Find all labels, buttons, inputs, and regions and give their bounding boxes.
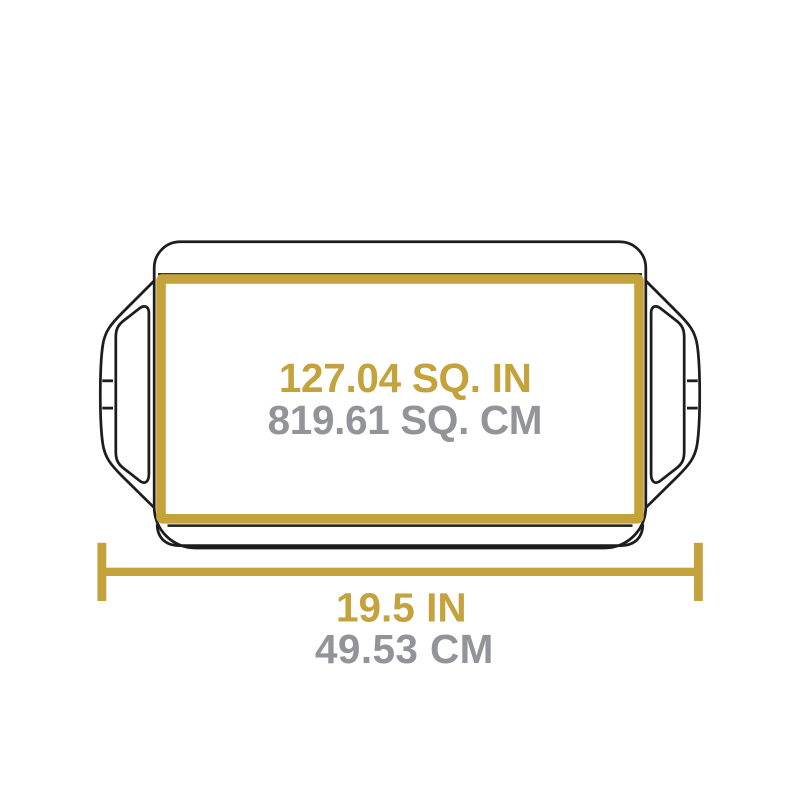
svg-text:127.04 SQ. IN: 127.04 SQ. IN bbox=[279, 355, 532, 401]
svg-text:819.61 SQ. CM: 819.61 SQ. CM bbox=[268, 397, 543, 443]
svg-text:19.5 IN: 19.5 IN bbox=[336, 585, 467, 631]
svg-text:49.53 CM: 49.53 CM bbox=[315, 626, 494, 672]
